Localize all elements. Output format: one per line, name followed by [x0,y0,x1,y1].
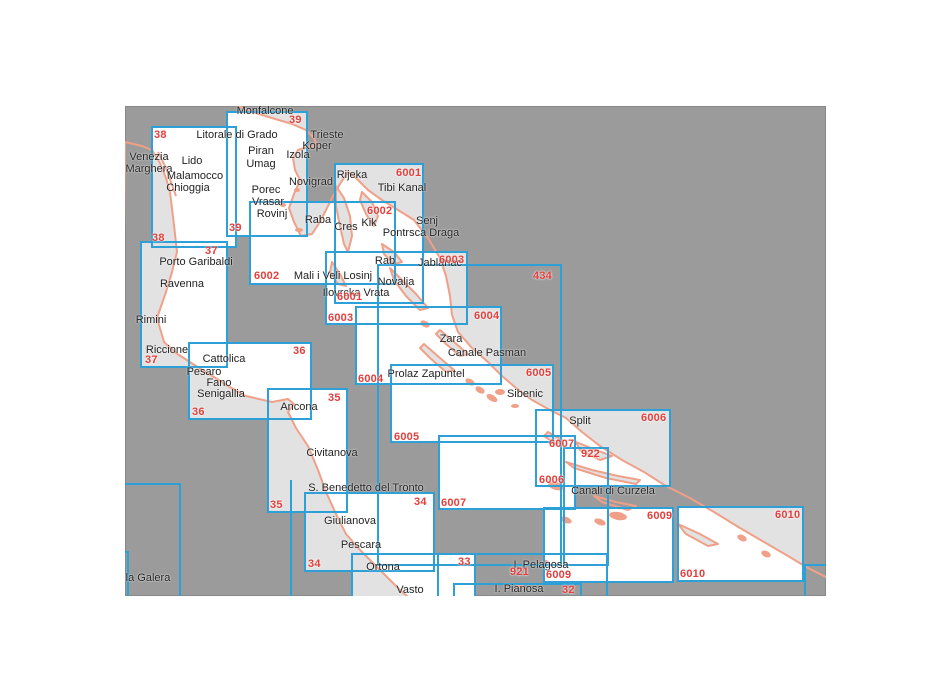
place-label-piran: Piran [248,145,274,157]
place-label-novigrad: Novigrad [289,176,333,188]
place-label-vrasar: Vrasar [252,196,284,208]
chart-number-37: 37 [205,245,218,257]
chart-number-6010: 6010 [680,568,705,580]
chart-number-33: 33 [458,556,471,568]
chart-number-6005: 6005 [526,367,551,379]
place-label-cattolica: Cattolica [203,353,246,365]
place-label-rab: Rab [375,255,395,267]
chart-number-921: 921 [510,566,529,578]
place-label-monfalcone: Monfalcone [237,106,294,117]
chart-index-page: 3838393937373636353534343360016001600260… [0,0,950,700]
chart-number-6005: 6005 [394,431,419,443]
chart-number-6004: 6004 [358,373,383,385]
place-label-marghera: Marghera [125,163,172,175]
chart-number-6001: 6001 [337,291,362,303]
chart-number-38: 38 [154,129,167,141]
chart-number-6007: 6007 [549,438,574,450]
chart-number-6001: 6001 [396,167,421,179]
place-label-cres: Cres [334,221,357,233]
chart-number-35: 35 [328,392,341,404]
chart-outline-edge-box-c[interactable] [804,564,826,596]
chart-number-6002: 6002 [254,270,279,282]
place-label-rovinj: Rovinj [257,208,288,220]
chart-number-6002: 6002 [367,205,392,217]
chart-number-434: 434 [533,270,552,282]
chart-number-39: 39 [229,222,242,234]
place-label-giulianova: Giulianova [324,515,376,527]
place-label-izola: Izola [286,149,309,161]
place-label-mali-i-veli-losinj: Mali i Veli Losinj [294,270,372,282]
chart-number-38: 38 [152,232,165,244]
chart-number-36: 36 [293,345,306,357]
chart-number-6003: 6003 [328,312,353,324]
place-label-chioggia: Chioggia [166,182,209,194]
place-label-raba: Raba [305,214,331,226]
chart-number-6006: 6006 [641,412,666,424]
place-label-pontrsca-draga: Pontrsca Draga [383,227,459,239]
place-label-la-galera: la Galera [126,572,171,584]
place-label-canali-di-curzela: Canali di Curzela [571,485,655,497]
chart-number-35: 35 [270,499,283,511]
chart-number-34: 34 [308,558,321,570]
place-label-litorale-di-grado: Litorale di Grado [196,129,277,141]
chart-outline-434[interactable] [377,264,562,566]
chart-number-34: 34 [414,496,427,508]
place-label-s-benedetto-del-tronto: S. Benedetto del Tronto [308,482,424,494]
boundary-segment [290,480,292,596]
place-label-ravenna: Ravenna [160,278,204,290]
chart-number-32: 32 [562,584,575,596]
place-label-senigallia: Senigallia [197,388,245,400]
place-label-split: Split [569,415,590,427]
place-label-prolaz-zapuntel: Prolaz Zapuntel [387,368,464,380]
place-label-pescara: Pescara [341,539,381,551]
chart-number-922: 922 [581,448,600,460]
place-label-rimini: Rimini [136,314,167,326]
chart-number-36: 36 [192,406,205,418]
place-label-zara: Zara [440,333,463,345]
place-label-ortona: Ortona [366,561,400,573]
place-label-rijeka: Rijeka [337,169,368,181]
place-label-umag: Umag [246,158,275,170]
place-label-vasto: Vasto [396,584,423,596]
place-label-tibi-kanal: Tibi Kanal [378,182,427,194]
chart-number-6009: 6009 [546,569,571,581]
chart-number-39: 39 [289,114,302,126]
chart-index-map: 3838393937373636353534343360016001600260… [125,106,826,596]
chart-number-6006: 6006 [539,474,564,486]
place-label-lido: Lido [182,155,203,167]
chart-number-6003: 6003 [439,254,464,266]
chart-number-37: 37 [145,354,158,366]
place-label-civitanova: Civitanova [306,447,357,459]
chart-number-6010: 6010 [775,509,800,521]
place-label-canale-pasman: Canale Pasman [448,347,526,359]
chart-outline-922[interactable] [563,447,609,566]
chart-number-6004: 6004 [474,310,499,322]
place-label-sibenic: Sibenic [507,388,543,400]
place-label-venezia: Venezia [129,151,168,163]
chart-number-6007: 6007 [441,497,466,509]
place-label-ancona: Ancona [280,401,317,413]
place-label-porto-garibaldi: Porto Garibaldi [159,256,232,268]
place-label-malamocco: Malamocco [167,170,223,182]
place-label-i-pianosa: I. Pianosa [495,583,544,595]
place-label-kik: Kik [361,217,376,229]
place-label-porec: Porec [252,184,281,196]
chart-number-6009: 6009 [647,510,672,522]
place-label-senj: Senj [416,215,438,227]
